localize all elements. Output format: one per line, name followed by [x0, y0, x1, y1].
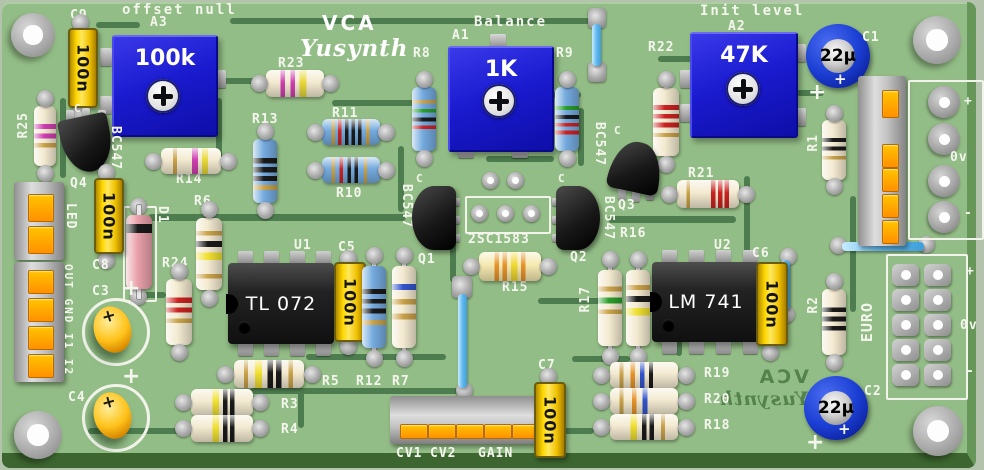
resistor-body — [598, 270, 622, 347]
solder-pad — [826, 354, 843, 371]
io-header — [14, 262, 64, 382]
connector-pad — [882, 194, 899, 218]
connector-pad — [892, 264, 919, 286]
cap-c3-polarity: + — [122, 276, 140, 301]
resistor-r4-label: R4 — [281, 422, 299, 437]
mount-hole-bottom-left — [14, 411, 62, 459]
connector-pad — [28, 226, 54, 254]
ic-pin — [662, 341, 677, 354]
resistor-body — [266, 70, 324, 97]
gain-label: GAIN — [478, 446, 513, 461]
solder-pad — [661, 186, 678, 203]
trimmer-a2-screw — [726, 72, 760, 106]
solder-pad — [559, 150, 576, 167]
solder-pad — [366, 350, 383, 367]
solder-pad — [471, 205, 488, 222]
connector-pad — [28, 270, 54, 294]
yusynth-logo: VCA Yusynth — [322, 11, 409, 62]
connector-pad — [892, 289, 919, 311]
resistor-r15 — [468, 252, 552, 281]
resistor-r10-label: R10 — [336, 186, 362, 201]
resistor-r7-label: R7 — [392, 374, 410, 389]
pcb-screenshot: offset null A3 Balance A1 Init level A2 … — [0, 0, 984, 470]
trimmer-a2-value: 47K — [692, 43, 796, 68]
cap-c1-polarity-small: + — [834, 70, 847, 88]
resistor-body — [626, 270, 650, 347]
resistor-r14-label: R14 — [176, 172, 202, 187]
resistor-body — [610, 414, 678, 440]
trimmer-a3-value: 100k — [114, 46, 216, 71]
resistor-r18 — [598, 414, 690, 440]
solder-pad — [171, 344, 188, 361]
solder-pad — [257, 202, 274, 219]
transistor-q1-designator: Q1 — [418, 252, 436, 267]
cap-c1-value: 22µ — [821, 39, 856, 74]
solder-pad — [378, 162, 395, 179]
transistor-q3-designator: Q3 — [618, 198, 636, 213]
led-header-label: LED — [63, 203, 78, 229]
solder-pad — [593, 419, 610, 436]
solder-pad — [37, 165, 54, 182]
mount-hole-top-right — [913, 16, 961, 64]
resistor-r23-label: R23 — [278, 56, 304, 71]
resistor-body — [191, 415, 253, 442]
resistor-r25-label: R25 — [16, 112, 31, 138]
solder-pad — [928, 86, 960, 118]
solder-pad — [658, 71, 675, 88]
footprint-2sc1583-label: 2SC1583 — [468, 232, 530, 247]
resistor-body — [166, 279, 192, 344]
solder-pad — [201, 201, 218, 218]
resistor-r12-label: R12 — [356, 374, 382, 389]
resistor-body — [322, 119, 380, 145]
solder-pad — [593, 393, 610, 410]
resistor-r11 — [312, 119, 390, 145]
yusynth-logo-mirrored: VCA Yusynth — [718, 366, 809, 410]
resistor-r24 — [166, 268, 192, 356]
solder-pad — [678, 419, 695, 436]
trace — [250, 388, 460, 394]
cv1-label: CV1 — [396, 446, 422, 461]
resistor-r5 — [222, 360, 316, 388]
io-header-label: OUT GND I1 I2 — [62, 264, 75, 376]
solder-pad — [396, 350, 413, 367]
resistor-r6 — [196, 206, 222, 302]
connector-pad — [882, 220, 899, 244]
solder-pad — [678, 393, 695, 410]
solder-pad — [366, 247, 383, 264]
resistor-r25 — [34, 95, 56, 177]
resistor-r17 — [598, 256, 622, 360]
resistor-r8 — [412, 76, 436, 162]
resistor-r13 — [253, 128, 277, 214]
resistor-r20-label: R20 — [704, 392, 730, 407]
connector-pad — [924, 264, 951, 286]
resistor-r22-label: R22 — [648, 40, 674, 55]
solder-pad — [37, 90, 54, 107]
cap-c5-value: 100n — [341, 278, 360, 327]
silk-offset-null: offset null — [122, 2, 237, 18]
mount-hole-top-left — [11, 13, 55, 57]
resistor-body — [392, 266, 416, 347]
solder-pad — [252, 420, 269, 437]
resistor-body — [822, 120, 846, 179]
resistor-r3 — [180, 389, 264, 416]
solder-pad — [658, 156, 675, 173]
euro-connector-label: EURO — [858, 302, 876, 342]
ic-pin — [290, 343, 305, 356]
cap-c8: 100n — [94, 178, 124, 254]
resistor-r22 — [653, 76, 679, 168]
cap-c8-value: 100n — [100, 192, 119, 241]
connector-pad — [428, 424, 456, 439]
resistor-r9-label: R9 — [556, 46, 574, 61]
trace — [850, 196, 856, 312]
resistor-r2-label: R2 — [806, 296, 821, 314]
cap-c1-polarity: + — [808, 80, 826, 105]
ic-u1: TL 072 — [228, 263, 334, 344]
cv-header — [390, 396, 538, 444]
solder-pad — [497, 205, 514, 222]
resistor-r23 — [256, 70, 334, 97]
cap-c4-designator: C4 — [68, 390, 86, 405]
resistor-r21 — [666, 180, 750, 208]
solder-pad — [540, 258, 557, 275]
solder-pad — [928, 165, 960, 197]
ic-pin — [238, 343, 253, 356]
resistor-body — [161, 148, 222, 174]
connector-pad — [28, 194, 54, 222]
transistor-q4-part: BC547 — [108, 126, 123, 170]
cap-c2-polarity-small: + — [838, 420, 851, 438]
cap-c1-designator: C1 — [862, 30, 880, 45]
connector-pad — [484, 424, 512, 439]
resistor-body — [191, 389, 253, 416]
trimmer-a2: 47K — [690, 32, 798, 138]
q4-collector-mark: C — [74, 102, 81, 115]
cap-c9-value: 100n — [74, 44, 93, 93]
euro-minus-label: - — [966, 364, 975, 379]
resistor-body — [479, 252, 541, 281]
trace — [608, 216, 736, 223]
connector-pad — [892, 364, 919, 386]
solder-pad — [602, 251, 619, 268]
resistor-body — [822, 289, 846, 354]
solder-pad — [826, 178, 843, 195]
resistor-body — [610, 362, 678, 388]
transistor-q3-part: BC547 — [592, 122, 607, 166]
cap-c3-body: + — [89, 302, 138, 358]
resistor-r1 — [822, 110, 846, 190]
resistor-body — [34, 106, 56, 167]
cap-c4-body: + — [89, 388, 138, 444]
solder-pad — [396, 247, 413, 264]
trace — [298, 390, 304, 428]
resistor-r5-label: R5 — [322, 374, 340, 389]
connector-pad — [882, 168, 899, 192]
solder-pad — [593, 367, 610, 384]
resistor-r4 — [180, 415, 264, 442]
solder-pad — [630, 251, 647, 268]
cap-c2-designator: C2 — [864, 384, 882, 399]
solder-pad — [416, 150, 433, 167]
connector-pad — [28, 354, 54, 378]
resistor-r9 — [555, 76, 579, 162]
resistor-r19-label: R19 — [704, 366, 730, 381]
transistor-q2-part: BC547 — [601, 196, 616, 240]
resistor-body — [677, 180, 739, 208]
q3-collector-mark: C — [614, 124, 621, 137]
resistor-r21-label: R21 — [688, 166, 714, 181]
resistor-r8-label: R8 — [413, 46, 431, 61]
cv2-label: CV2 — [430, 446, 456, 461]
resistor-r16-label: R16 — [620, 226, 646, 241]
ic-u1-pin1-dot — [238, 321, 251, 334]
ic-u2-pin1-dot — [662, 319, 675, 332]
cap-c7-value: 100n — [541, 396, 560, 445]
connector-pad — [892, 314, 919, 336]
resistor-r1-label: R1 — [806, 134, 821, 152]
solder-pad — [826, 273, 843, 290]
solder-pad — [220, 153, 237, 170]
solder-pad — [738, 186, 755, 203]
cap-c8-designator: C8 — [92, 258, 110, 273]
connector-pad — [456, 424, 484, 439]
trimmer-a3-designator: A3 — [150, 15, 168, 30]
resistor-r14 — [150, 148, 232, 174]
ic-u2-part: LM 741 — [668, 291, 743, 313]
resistor-body — [253, 139, 277, 203]
connector-pad — [882, 90, 899, 118]
logo-brand-mirrored: Yusynth — [718, 388, 809, 410]
resistor-body — [322, 157, 380, 183]
component-leg — [100, 48, 112, 66]
resistor-r12 — [362, 252, 386, 362]
trimmer-a3: 100k — [112, 35, 218, 137]
solder-pad — [378, 124, 395, 141]
resistor-body — [234, 360, 304, 388]
resistor-r10 — [312, 157, 390, 183]
power-zero-label: 0v — [950, 150, 968, 165]
euro-plus-label: + — [966, 264, 975, 279]
solder-pad — [507, 172, 524, 189]
trimmer-a1-designator: A1 — [452, 28, 470, 43]
solder-pad — [307, 124, 324, 141]
solder-pad — [322, 75, 339, 92]
cap-c6: 100n — [756, 262, 788, 346]
euro-zero-label: 0v — [960, 318, 978, 333]
solder-pad — [257, 123, 274, 140]
silk-init-level: Init level — [700, 3, 804, 19]
connector-pad — [892, 339, 919, 361]
resistor-body — [196, 218, 222, 289]
mount-hole-bottom-right — [913, 406, 963, 456]
trimmer-a1-value: 1K — [450, 57, 552, 82]
resistor-r17-label: R17 — [578, 286, 593, 312]
cap-c3-designator: C3 — [92, 284, 110, 299]
ic-u2: LM 741 — [652, 262, 760, 342]
trimmer-a1-screw — [482, 84, 516, 118]
resistor-r16 — [626, 256, 650, 360]
ic-pin — [316, 343, 331, 356]
cap-c4: + — [82, 384, 150, 452]
solder-pad — [217, 366, 234, 383]
solder-pad — [171, 263, 188, 280]
resistor-r20 — [598, 388, 690, 414]
solder-pad — [559, 71, 576, 88]
jumper-wire-center — [458, 294, 467, 388]
connector-pad — [882, 144, 899, 168]
connector-pad — [924, 289, 951, 311]
resistor-body — [610, 388, 678, 414]
logo-title-mirrored: VCA — [718, 366, 809, 388]
solder-pad — [252, 394, 269, 411]
resistor-r2 — [822, 278, 846, 366]
transistor-q4-designator: Q4 — [70, 176, 88, 191]
trimmer-a3-screw — [146, 79, 180, 113]
ic-u1-part: TL 072 — [246, 293, 317, 315]
cap-c2-polarity: + — [806, 430, 824, 455]
cap-c7: 100n — [534, 382, 566, 458]
trace — [658, 56, 692, 62]
power-minus-label: - — [964, 206, 973, 221]
connector-pad — [400, 424, 428, 439]
trace — [96, 22, 140, 28]
cap-c3: + — [82, 298, 150, 366]
silk-balance: Balance — [474, 14, 547, 30]
cap-c9: 100n — [68, 28, 98, 108]
logo-title: VCA — [322, 11, 409, 35]
solder-pad — [251, 75, 268, 92]
solder-pad — [826, 105, 843, 122]
ic-pin — [689, 341, 704, 354]
resistor-r19 — [598, 362, 690, 388]
connector-pad — [924, 314, 951, 336]
cap-c6-designator: C6 — [752, 246, 770, 261]
ic-pin — [716, 341, 731, 354]
resistor-r7 — [392, 252, 416, 362]
resistor-r15-label: R15 — [502, 280, 528, 295]
resistor-body — [653, 88, 679, 156]
connector-pad — [924, 339, 951, 361]
jumper-wire-top — [592, 24, 601, 66]
solder-pad — [416, 71, 433, 88]
resistor-body — [362, 266, 386, 347]
solder-pad — [307, 162, 324, 179]
resistor-body — [412, 87, 436, 151]
power-plus-label: + — [964, 94, 973, 109]
connector-pad — [28, 326, 54, 350]
solder-pad — [304, 366, 321, 383]
power-header — [858, 76, 906, 246]
q1-collector-mark: C — [416, 172, 423, 185]
solder-pad — [482, 172, 499, 189]
connector-pad — [924, 364, 951, 386]
connector-pad — [28, 298, 54, 322]
cap-c6-value: 100n — [763, 280, 782, 329]
solder-pad — [762, 344, 779, 361]
ic-u1-notch — [226, 294, 238, 314]
trimmer-a1: 1K — [448, 46, 554, 152]
transistor-q1 — [412, 186, 456, 250]
solder-pad — [928, 201, 960, 233]
solder-pad — [463, 258, 480, 275]
solder-pad — [678, 367, 695, 384]
solder-pad — [201, 290, 218, 307]
solder-pad — [175, 394, 192, 411]
resistor-r18-label: R18 — [704, 418, 730, 433]
resistor-body — [555, 87, 579, 151]
led-header — [14, 182, 64, 260]
transistor-q2-designator: Q2 — [570, 250, 588, 265]
transistor-q2 — [556, 186, 600, 250]
q2-collector-mark: C — [558, 172, 565, 185]
resistor-r3-label: R3 — [281, 397, 299, 412]
trace — [148, 214, 406, 221]
solder-pad — [175, 420, 192, 437]
solder-pad — [523, 205, 540, 222]
solder-pad — [145, 153, 162, 170]
ic-pin — [264, 343, 279, 356]
ic-u2-notch — [650, 292, 662, 312]
logo-brand: Yusynth — [300, 35, 409, 62]
diode-d1-label: D1 — [155, 206, 170, 224]
